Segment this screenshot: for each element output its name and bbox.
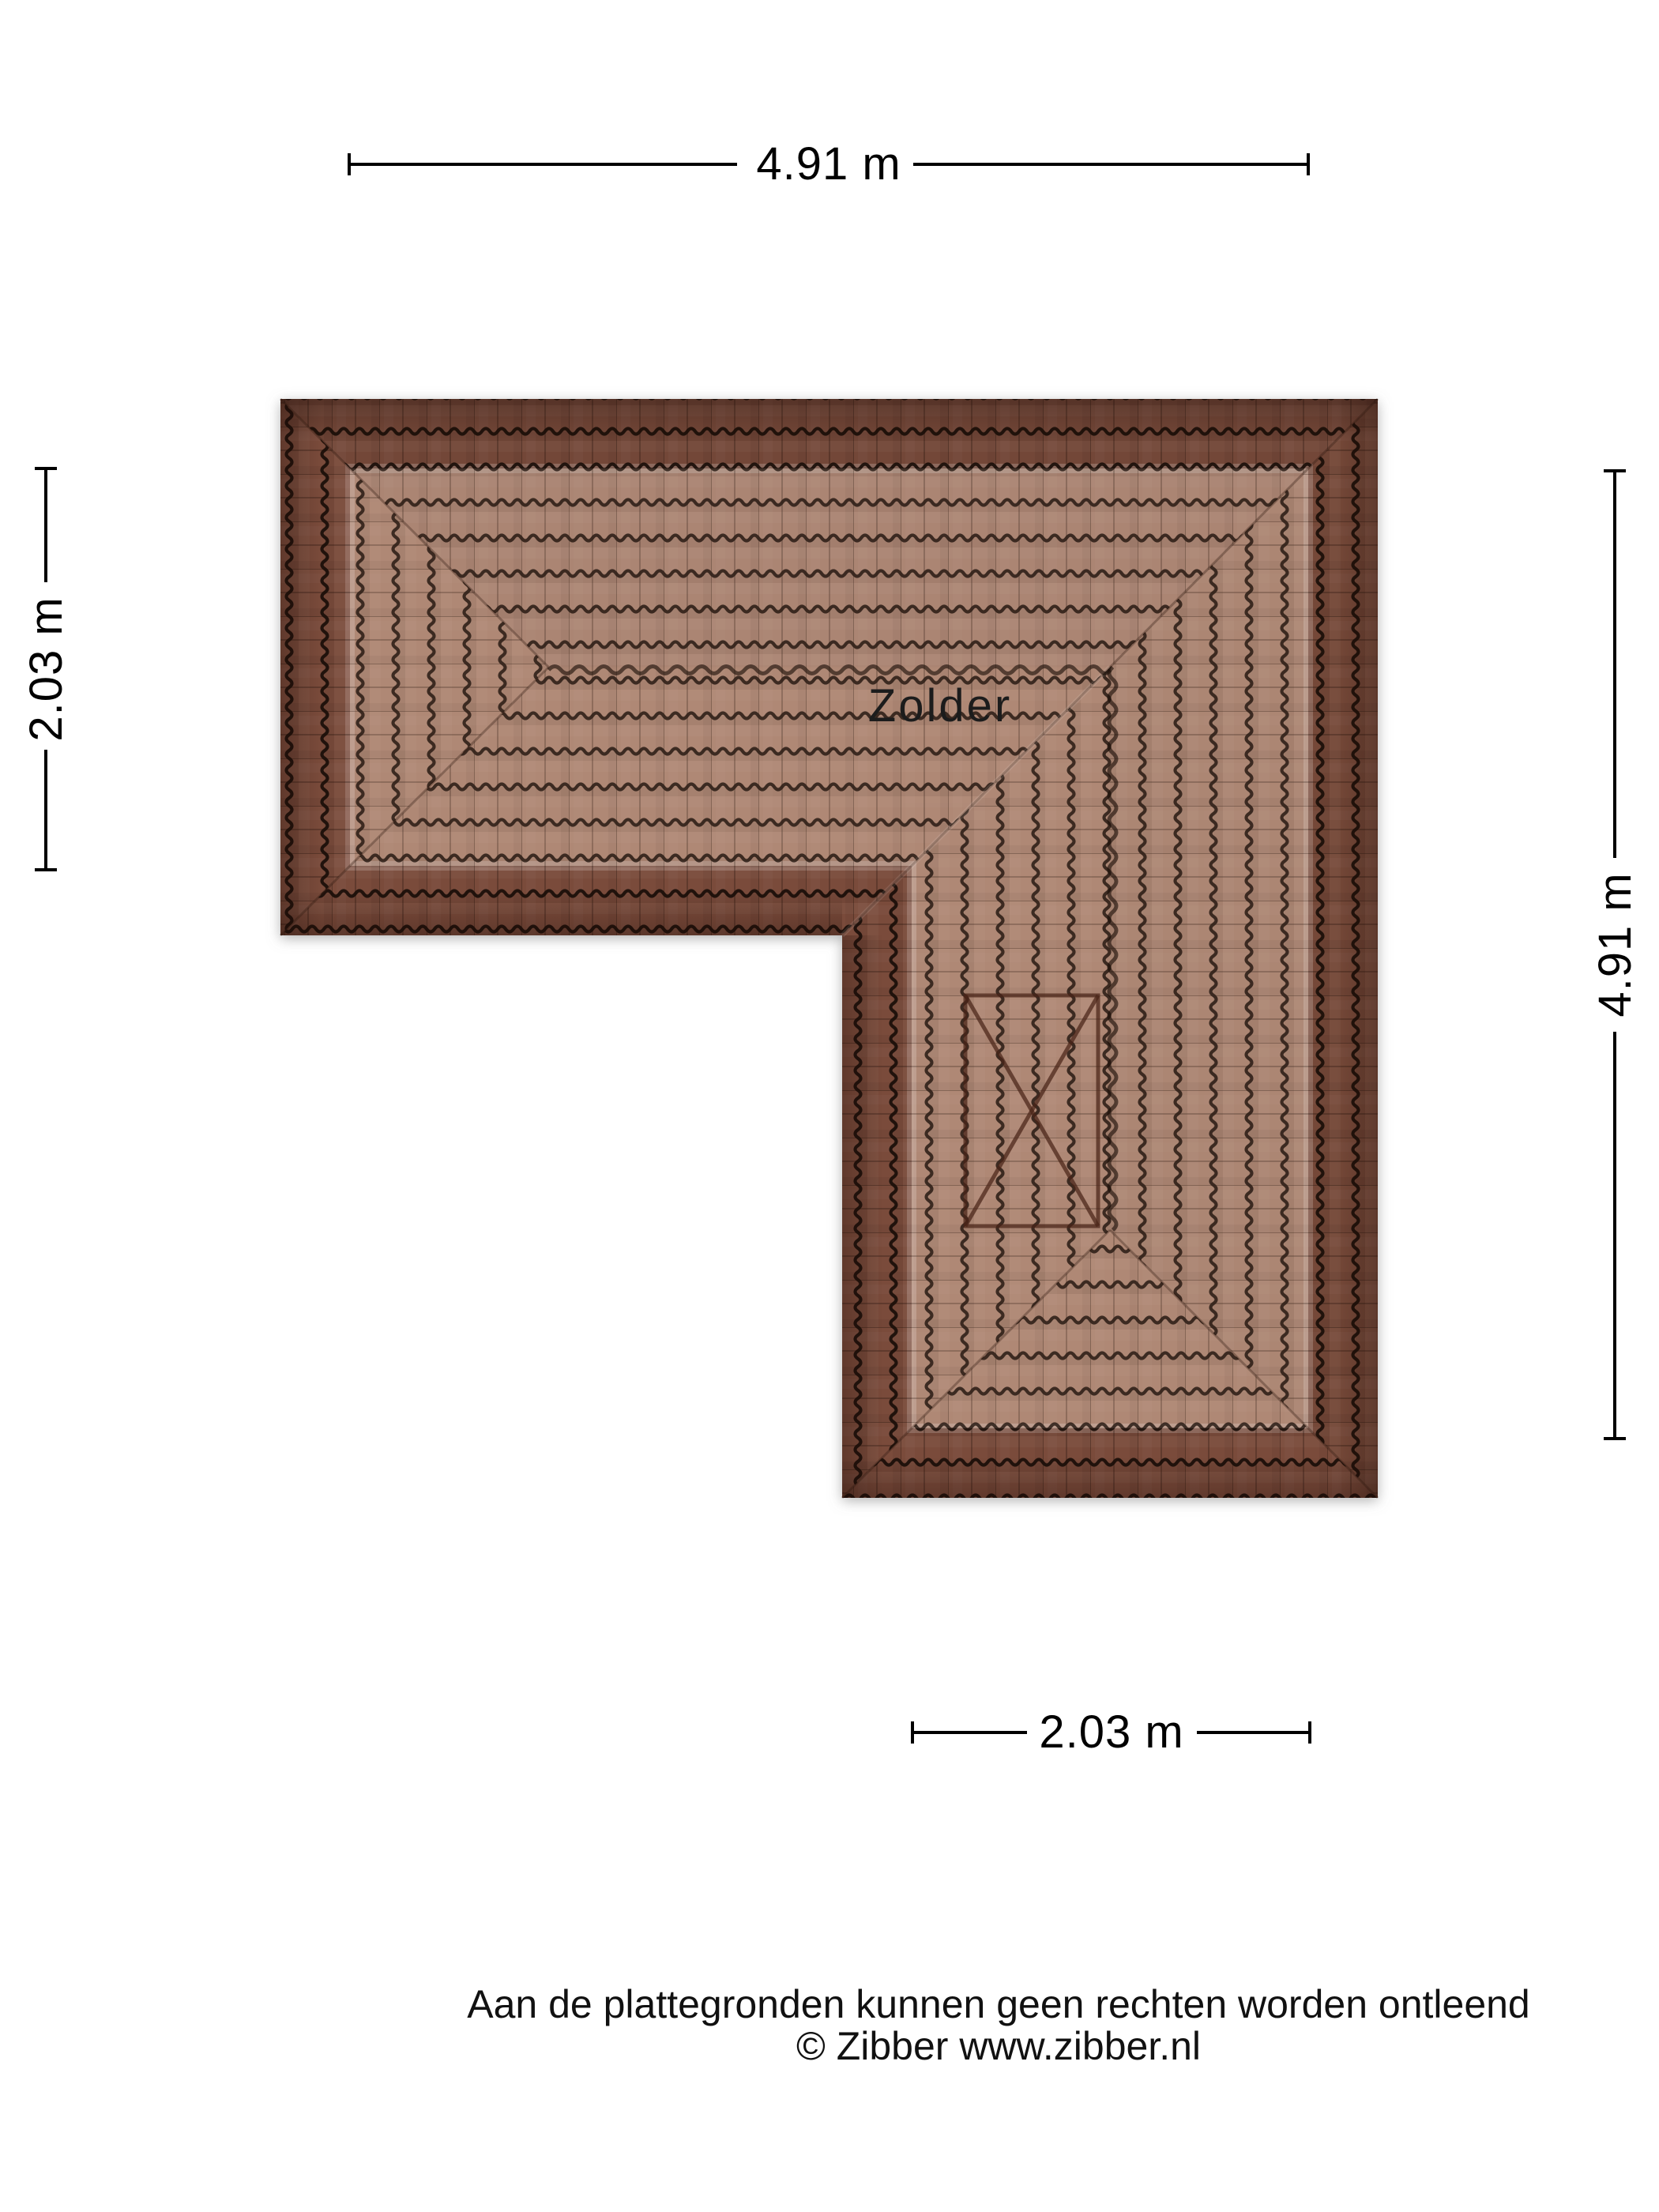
svg-text:2.03 m: 2.03 m: [21, 596, 72, 741]
svg-text:Aan de plattegronden kunnen ge: Aan de plattegronden kunnen geen rechten…: [467, 1982, 1530, 2026]
svg-text:2.03 m: 2.03 m: [1039, 1706, 1183, 1758]
svg-text:Zolder: Zolder: [868, 680, 1012, 732]
svg-text:4.91 m: 4.91 m: [1589, 872, 1641, 1017]
svg-text:© Zibber www.zibber.nl: © Zibber www.zibber.nl: [796, 2024, 1201, 2068]
svg-text:4.91 m: 4.91 m: [756, 138, 901, 190]
